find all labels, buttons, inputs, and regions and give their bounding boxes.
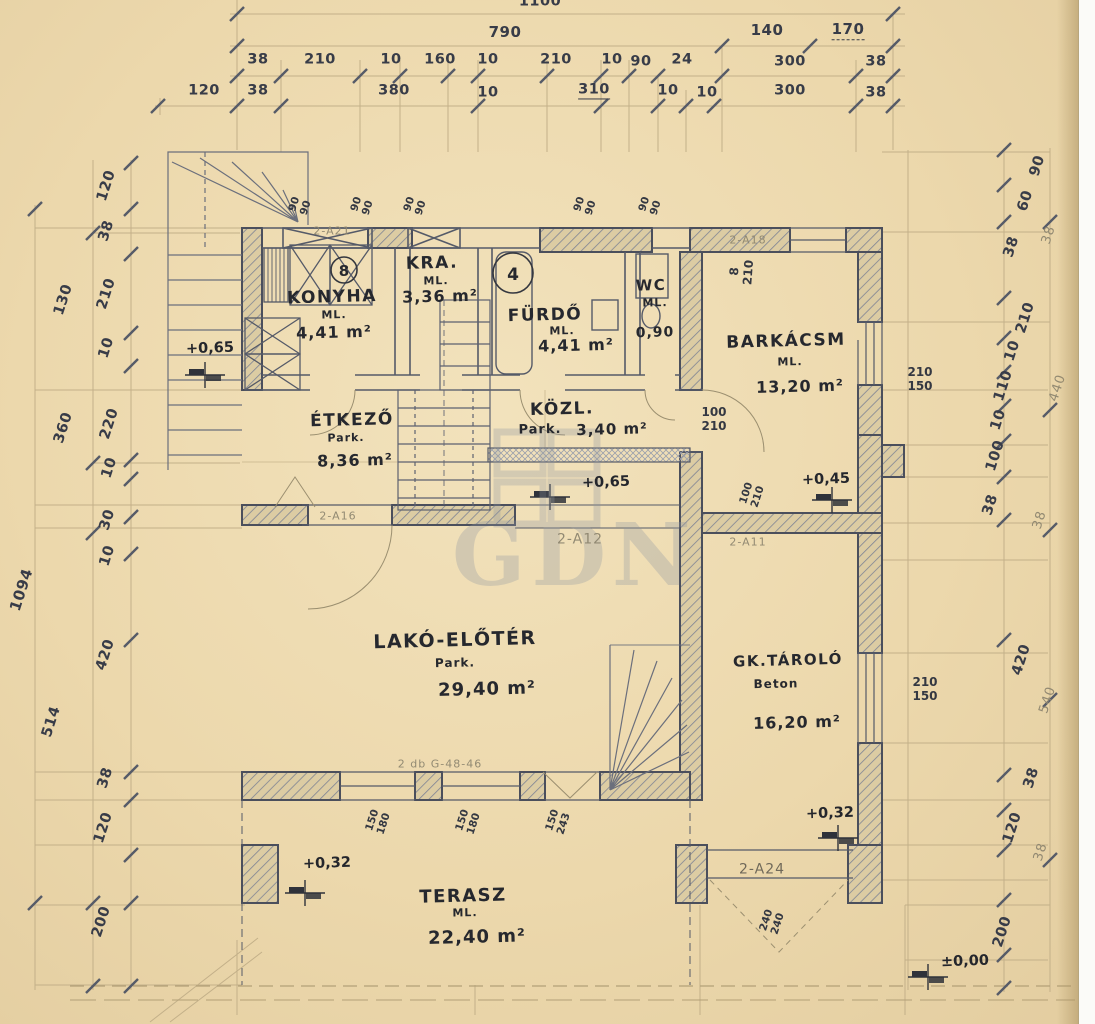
room-wc-note: ML. [642, 297, 667, 309]
dim-row3-1: 210 [304, 52, 336, 67]
opening-barkacs-door: 8210 [727, 259, 756, 286]
dim-row4-4: 310 [578, 82, 610, 99]
room-furdo-name: FÜRDŐ [507, 306, 582, 326]
room-etkezo-name: ÉTKEZŐ [310, 411, 394, 431]
dim-top-1100: 1100 [519, 0, 561, 10]
dim-row3-8: 24 [671, 52, 692, 67]
room-terasz-note: ML. [452, 907, 477, 919]
pencil-2a16: 2-A16 [319, 510, 356, 521]
dim-row3-2: 10 [380, 52, 401, 67]
room-barkacs-name: BARKÁCSM [726, 332, 846, 353]
dim-row3-0: 38 [247, 52, 268, 67]
dim-row3-10: 38 [865, 54, 886, 69]
room-wc-name: WC [636, 278, 667, 294]
pencil-2a11: 2-A11 [729, 536, 766, 547]
paper-edge-shadow [1057, 0, 1079, 1024]
room-terasz-name: TERASZ [419, 887, 507, 908]
room-wc-area: 0,90 [636, 325, 675, 341]
room-kra-name: KRA. [406, 254, 459, 273]
dim-row3-9: 300 [774, 54, 806, 69]
plan-linework: 8 4 GDN [0, 0, 1095, 1024]
room-etkezo-note: Park. [327, 432, 364, 444]
scan-edge [1078, 0, 1095, 1024]
exterior-stair [168, 152, 308, 470]
room-furdo-area: 4,41 m² [538, 337, 614, 356]
room-kra-note: ML. [423, 275, 448, 287]
dim-row4-5: 10 [657, 83, 678, 98]
elevation-garage-step: +0,45 [802, 472, 850, 489]
room-barkacs-note: ML. [777, 356, 802, 368]
pencil-2a24: 2-A24 [739, 863, 785, 878]
watermark-text: GDN [452, 505, 697, 606]
room-gktarolo-name: GK.TÁROLÓ [733, 652, 843, 670]
dim-row4-3: 10 [477, 85, 498, 100]
dim-row3-5: 210 [540, 52, 572, 67]
room-kra-area: 3,36 m² [402, 288, 478, 307]
room-konyha-name: KONYHA [287, 288, 377, 308]
dim-row3-4: 10 [477, 52, 498, 67]
elevation-stair: +0,65 [186, 341, 234, 358]
site-boundary [70, 986, 1075, 1000]
elevation-garage-door: +0,32 [806, 806, 854, 823]
dim-top-790: 790 [489, 25, 522, 41]
room-konyha-area: 4,41 m² [296, 324, 372, 343]
opening-garage-window: 210150 [912, 676, 937, 704]
room-etkezo-area: 8,36 m² [317, 452, 393, 471]
floor-plan-sheet: 8 4 GDN 1100 790 140 170 38 210 10 [0, 0, 1095, 1024]
dim-row4-2: 380 [378, 83, 410, 98]
room-terasz-area: 22,40 m² [428, 927, 526, 948]
room-barkacs-area: 13,20 m² [756, 378, 844, 397]
dim-row3-6: 10 [601, 52, 622, 67]
opening-barkacs-window: 210150 [907, 366, 932, 394]
pencil-2a18: 2-A18 [729, 234, 766, 245]
opening-hall-door: 100210 [701, 406, 726, 434]
room-gktarolo-note: Beton [753, 677, 798, 690]
room-kozl-name: KÖZL. [530, 400, 594, 419]
room-kozl-note: Park. [518, 423, 561, 437]
dim-row4-8: 38 [865, 85, 886, 100]
room-kozl-area: 3,40 m² [576, 421, 648, 438]
kitchen-fixtures [245, 245, 372, 390]
elevation-ground: ±0,00 [941, 954, 989, 971]
dim-row4-1: 38 [247, 83, 268, 98]
dim-row4-6: 10 [696, 85, 717, 100]
dim-top-140: 140 [751, 23, 784, 39]
pencil-2a12: 2-A12 [557, 533, 603, 548]
interior-stair [398, 300, 490, 510]
room-lako-note: Park. [435, 656, 475, 669]
room-konyha-note: ML. [321, 309, 346, 321]
bath-circle-label: 4 [507, 265, 519, 285]
dim-top-170: 170 [832, 22, 865, 40]
room-gktarolo-area: 16,20 m² [753, 714, 841, 733]
pencil-window-type: 2 db G-48-46 [398, 758, 482, 769]
dim-row3-3: 160 [424, 52, 456, 67]
elevation-hall: +0,65 [582, 475, 630, 492]
dim-row4-0: 120 [188, 83, 220, 98]
kitchen-circle-label: 8 [339, 262, 349, 280]
pencil-2a21: 2-A21 [313, 225, 350, 236]
dim-row4-7: 300 [774, 83, 806, 98]
room-lako-name: LAKÓ-ELŐTÉR [373, 629, 537, 653]
winder-stair [610, 645, 690, 790]
dim-row3-7: 90 [630, 54, 651, 69]
room-lako-area: 29,40 m² [438, 679, 536, 700]
elevation-terrace: +0,32 [303, 856, 351, 873]
